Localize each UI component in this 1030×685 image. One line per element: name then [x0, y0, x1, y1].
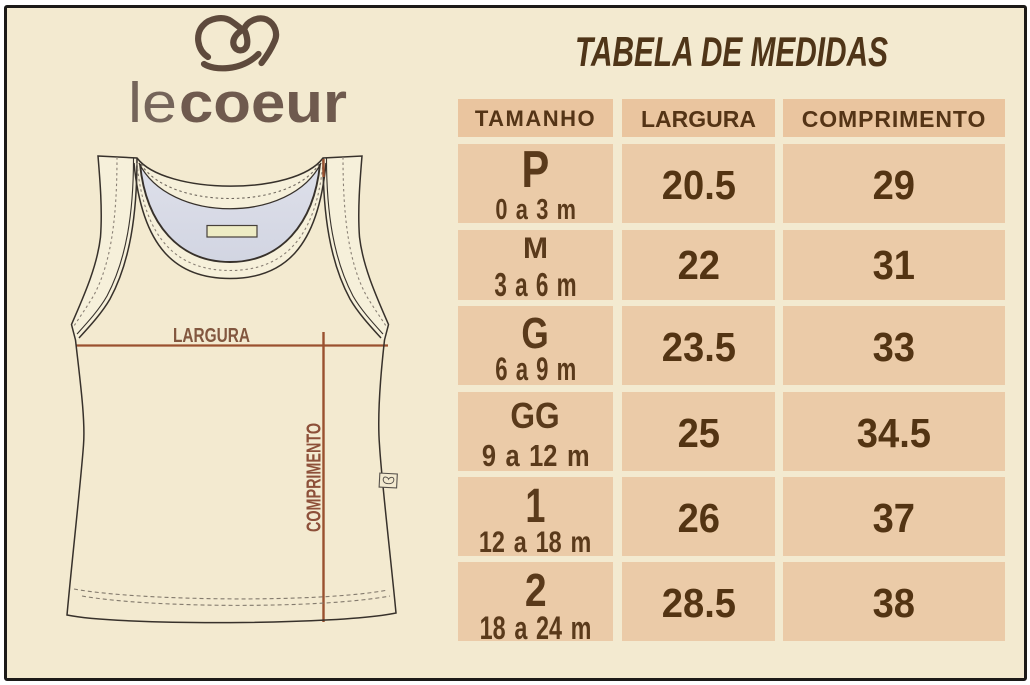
svg-text:le: le	[128, 71, 177, 135]
svg-text:LARGURA: LARGURA	[173, 325, 250, 347]
svg-text:COMPRIMENTO: COMPRIMENTO	[304, 423, 326, 532]
svg-text:TABELA DE MEDIDAS: TABELA DE MEDIDAS	[575, 28, 888, 75]
svg-text:coeur: coeur	[179, 71, 347, 135]
